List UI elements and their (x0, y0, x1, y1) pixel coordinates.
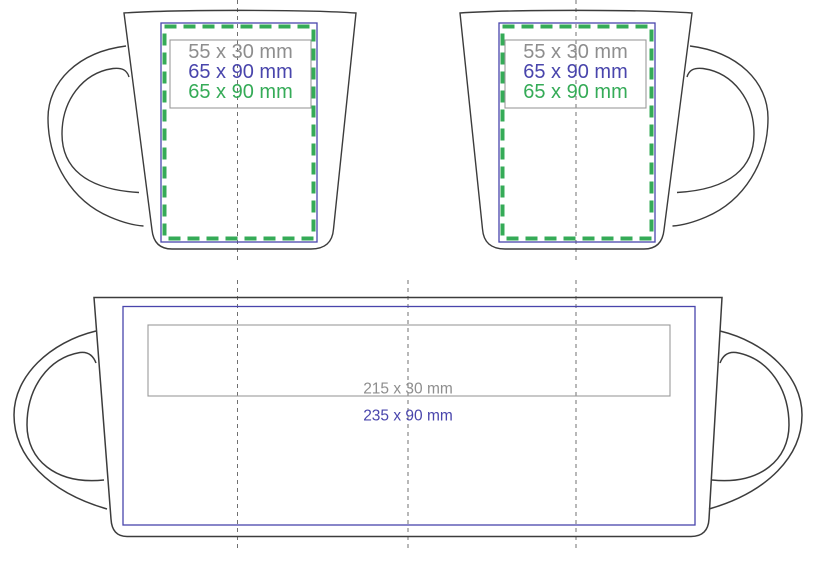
wrap-handle-right (709, 331, 802, 509)
dimension-label-blue: 235 x 90 mm (363, 408, 453, 425)
dimension-label-green: 65 x 90 mm (188, 81, 292, 103)
front-view-right-mug: 55 x 30 mm 65 x 90 mm 65 x 90 mm (460, 10, 768, 249)
wrap-handle-left (14, 331, 107, 509)
front-view-left-mug: 55 x 30 mm 65 x 90 mm 65 x 90 mm (48, 10, 356, 249)
dimension-label-blue: 65 x 90 mm (523, 61, 627, 83)
wrap-view-mug: 215 x 30 mm 235 x 90 mm (14, 298, 802, 537)
dimension-label-gray: 55 x 30 mm (523, 41, 627, 63)
mug-print-area-diagram: 55 x 30 mm 65 x 90 mm 65 x 90 mm 55 x 30… (0, 0, 823, 562)
dimension-label-blue: 65 x 90 mm (188, 61, 292, 83)
dimension-label-green: 65 x 90 mm (523, 81, 627, 103)
dimension-label-gray: 55 x 30 mm (188, 41, 292, 63)
diagram-canvas: 55 x 30 mm 65 x 90 mm 65 x 90 mm 55 x 30… (0, 0, 823, 562)
dimension-label-gray: 215 x 30 mm (363, 381, 453, 398)
